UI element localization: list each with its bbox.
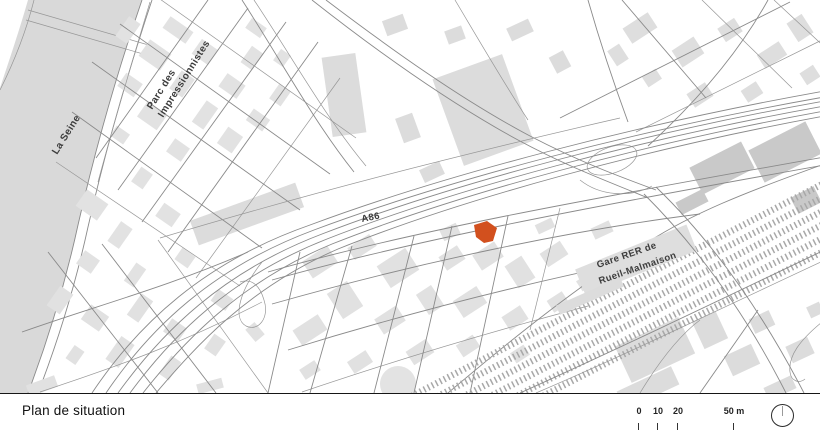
- page-title: Plan de situation: [22, 403, 125, 418]
- scale-tick: [733, 423, 734, 430]
- north-indicator-icon: [771, 404, 794, 427]
- scale-tick: [677, 423, 678, 430]
- scale-label-10: 10: [653, 406, 663, 416]
- highway-label: A86: [360, 211, 380, 225]
- scale-tick: [638, 423, 639, 430]
- site-marker: [474, 221, 497, 243]
- scale-label-50m: 50 m: [724, 406, 745, 416]
- buildings-top-centre: [190, 14, 571, 246]
- river-seine: [0, 0, 152, 393]
- buildings-right-dark: [675, 121, 820, 215]
- buildings-bottom-right: [615, 302, 820, 393]
- footer-divider: [0, 393, 820, 394]
- scale-tick: [657, 423, 658, 430]
- scale-label-20: 20: [673, 406, 683, 416]
- scale-label-0: 0: [636, 406, 641, 416]
- situation-plan: La Seine Parc des Impressionnistes A86 G…: [0, 0, 820, 445]
- north-needle: [782, 406, 784, 416]
- map-canvas: La Seine Parc des Impressionnistes A86 G…: [0, 0, 820, 393]
